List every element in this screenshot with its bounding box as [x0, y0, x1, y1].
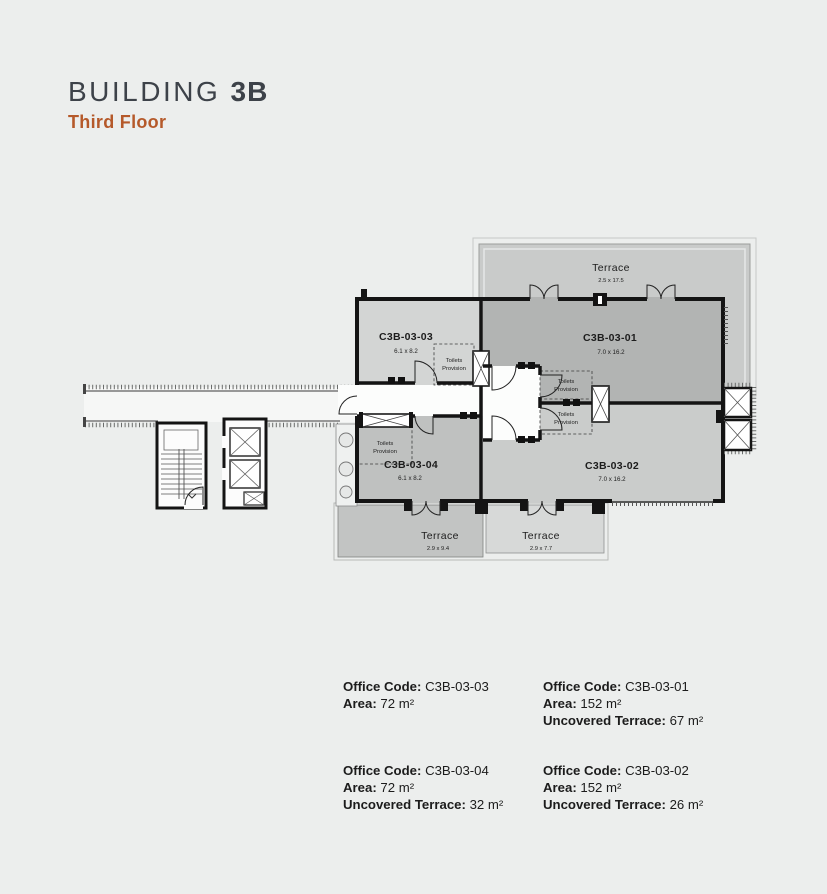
toilets-label: Provision: [373, 449, 397, 455]
area-label: Area:: [343, 780, 377, 795]
uncovered-terrace-label: Uncovered Terrace:: [543, 713, 666, 728]
office-code-label: Office Code:: [343, 679, 421, 694]
shaft: [592, 386, 609, 422]
terrace-b-label: Terrace: [522, 530, 560, 542]
terrace-b-dims: 2.9 x 7.7: [530, 546, 552, 552]
toilets-label: Toilets: [446, 358, 463, 364]
terrace-a-dims: 2.9 x 9.4: [427, 546, 450, 552]
terrace-b: Terrace 2.9 x 7.7: [486, 505, 604, 553]
unit-info-c3b-03-04: Office Code: C3B-03-04 Area: 72 m² Uncov…: [343, 763, 563, 813]
area-label: Area:: [343, 696, 377, 711]
elevator-annex: [724, 385, 754, 452]
unit-info-c3b-03-02: Office Code: C3B-03-02 Area: 152 m² Unco…: [543, 763, 763, 813]
uncovered-terrace-value: 26 m²: [670, 797, 704, 812]
area-label: Area:: [543, 780, 577, 795]
office-code-label: Office Code:: [343, 763, 421, 778]
corridor: [338, 385, 483, 416]
room-label-c3b-03-03: C3B-03-03: [379, 331, 433, 343]
toilets-label: Provision: [554, 420, 578, 426]
elevator-core: [222, 419, 266, 508]
elevator-car: [230, 460, 260, 488]
access-bridge: [83, 384, 357, 427]
uncovered-terrace-value: 67 m²: [670, 713, 704, 728]
office-code-value: C3B-03-01: [625, 679, 689, 694]
floor-plan-page: { "header": { "building_word": "BUILDING…: [0, 0, 827, 894]
bridge-end-cap: [83, 384, 86, 394]
room-dims-c3b-03-02: 7.0 x 16.2: [598, 476, 626, 483]
office-code-value: C3B-03-03: [425, 679, 489, 694]
office-code-label: Office Code:: [543, 763, 621, 778]
floor-plan-drawing: Terrace 2.5 x 17.5 Terrace 2.9 x 9.4 Ter…: [0, 0, 827, 894]
room-dims-c3b-03-01: 7.0 x 16.2: [597, 349, 625, 356]
office-code-value: C3B-03-02: [625, 763, 689, 778]
office-code-value: C3B-03-04: [425, 763, 489, 778]
area-value: 72 m²: [380, 780, 414, 795]
bridge-end-cap: [83, 417, 86, 427]
terrace-a-label: Terrace: [421, 530, 459, 542]
room-fills: [338, 297, 723, 503]
shaft: [473, 351, 489, 386]
area-value: 152 m²: [580, 696, 621, 711]
area-value: 72 m²: [380, 696, 414, 711]
uncovered-terrace-label: Uncovered Terrace:: [543, 797, 666, 812]
wc-fixtures-strip: [336, 424, 357, 506]
area-label: Area:: [543, 696, 577, 711]
uncovered-terrace-value: 32 m²: [470, 797, 504, 812]
uncovered-terrace-label: Uncovered Terrace:: [343, 797, 466, 812]
toilets-label: Provision: [442, 366, 466, 372]
room-label-c3b-03-04: C3B-03-04: [384, 459, 438, 471]
room-dims-c3b-03-03: 6.1 x 8.2: [394, 348, 418, 355]
room-label-c3b-03-01: C3B-03-01: [583, 332, 637, 344]
room-dims-c3b-03-04: 6.1 x 8.2: [398, 475, 422, 482]
duct: [359, 412, 413, 428]
toilets-label: Toilets: [558, 412, 575, 418]
office-code-label: Office Code:: [543, 679, 621, 694]
terrace-top-dims: 2.5 x 17.5: [598, 278, 623, 284]
service-shaft: [244, 492, 264, 505]
elevator-car: [230, 428, 260, 456]
unit-info-c3b-03-01: Office Code: C3B-03-01 Area: 152 m² Unco…: [543, 679, 763, 729]
staircase: [157, 423, 206, 509]
unit-info-c3b-03-03: Office Code: C3B-03-03 Area: 72 m²: [343, 679, 563, 713]
terrace-top-label: Terrace: [592, 262, 630, 274]
area-value: 152 m²: [580, 780, 621, 795]
room-label-c3b-03-02: C3B-03-02: [585, 460, 639, 472]
toilets-label: Toilets: [377, 441, 394, 447]
